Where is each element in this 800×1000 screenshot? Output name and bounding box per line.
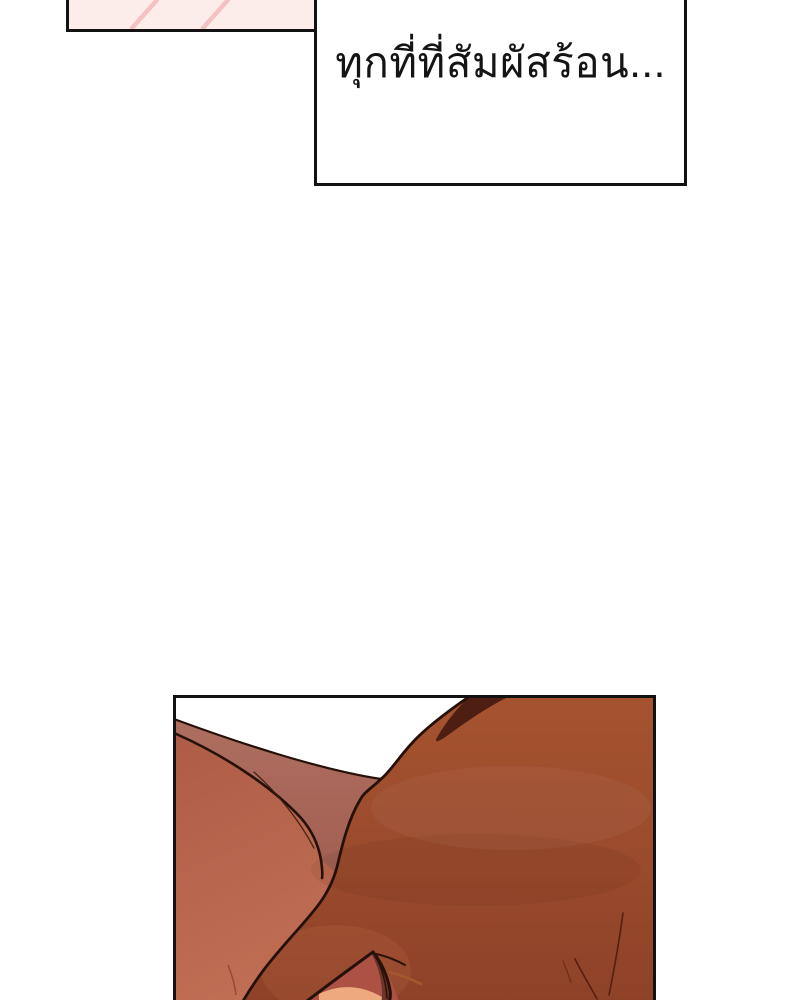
flashback-panel-art (69, 0, 314, 29)
flashback-panel (66, 0, 317, 32)
caption-text: ทุกที่ที่สัมผัสร้อน... (317, 37, 684, 90)
artwork-svg (176, 698, 653, 1000)
caption-box: ทุกที่ที่สัมผัสร้อน... (314, 0, 687, 186)
flashback-panel-fill (69, 0, 314, 29)
art-panel (173, 695, 656, 1000)
mass-highlight-band (371, 766, 651, 850)
comic-page: ทุกที่ที่สัมผัสร้อน... (0, 0, 800, 1000)
